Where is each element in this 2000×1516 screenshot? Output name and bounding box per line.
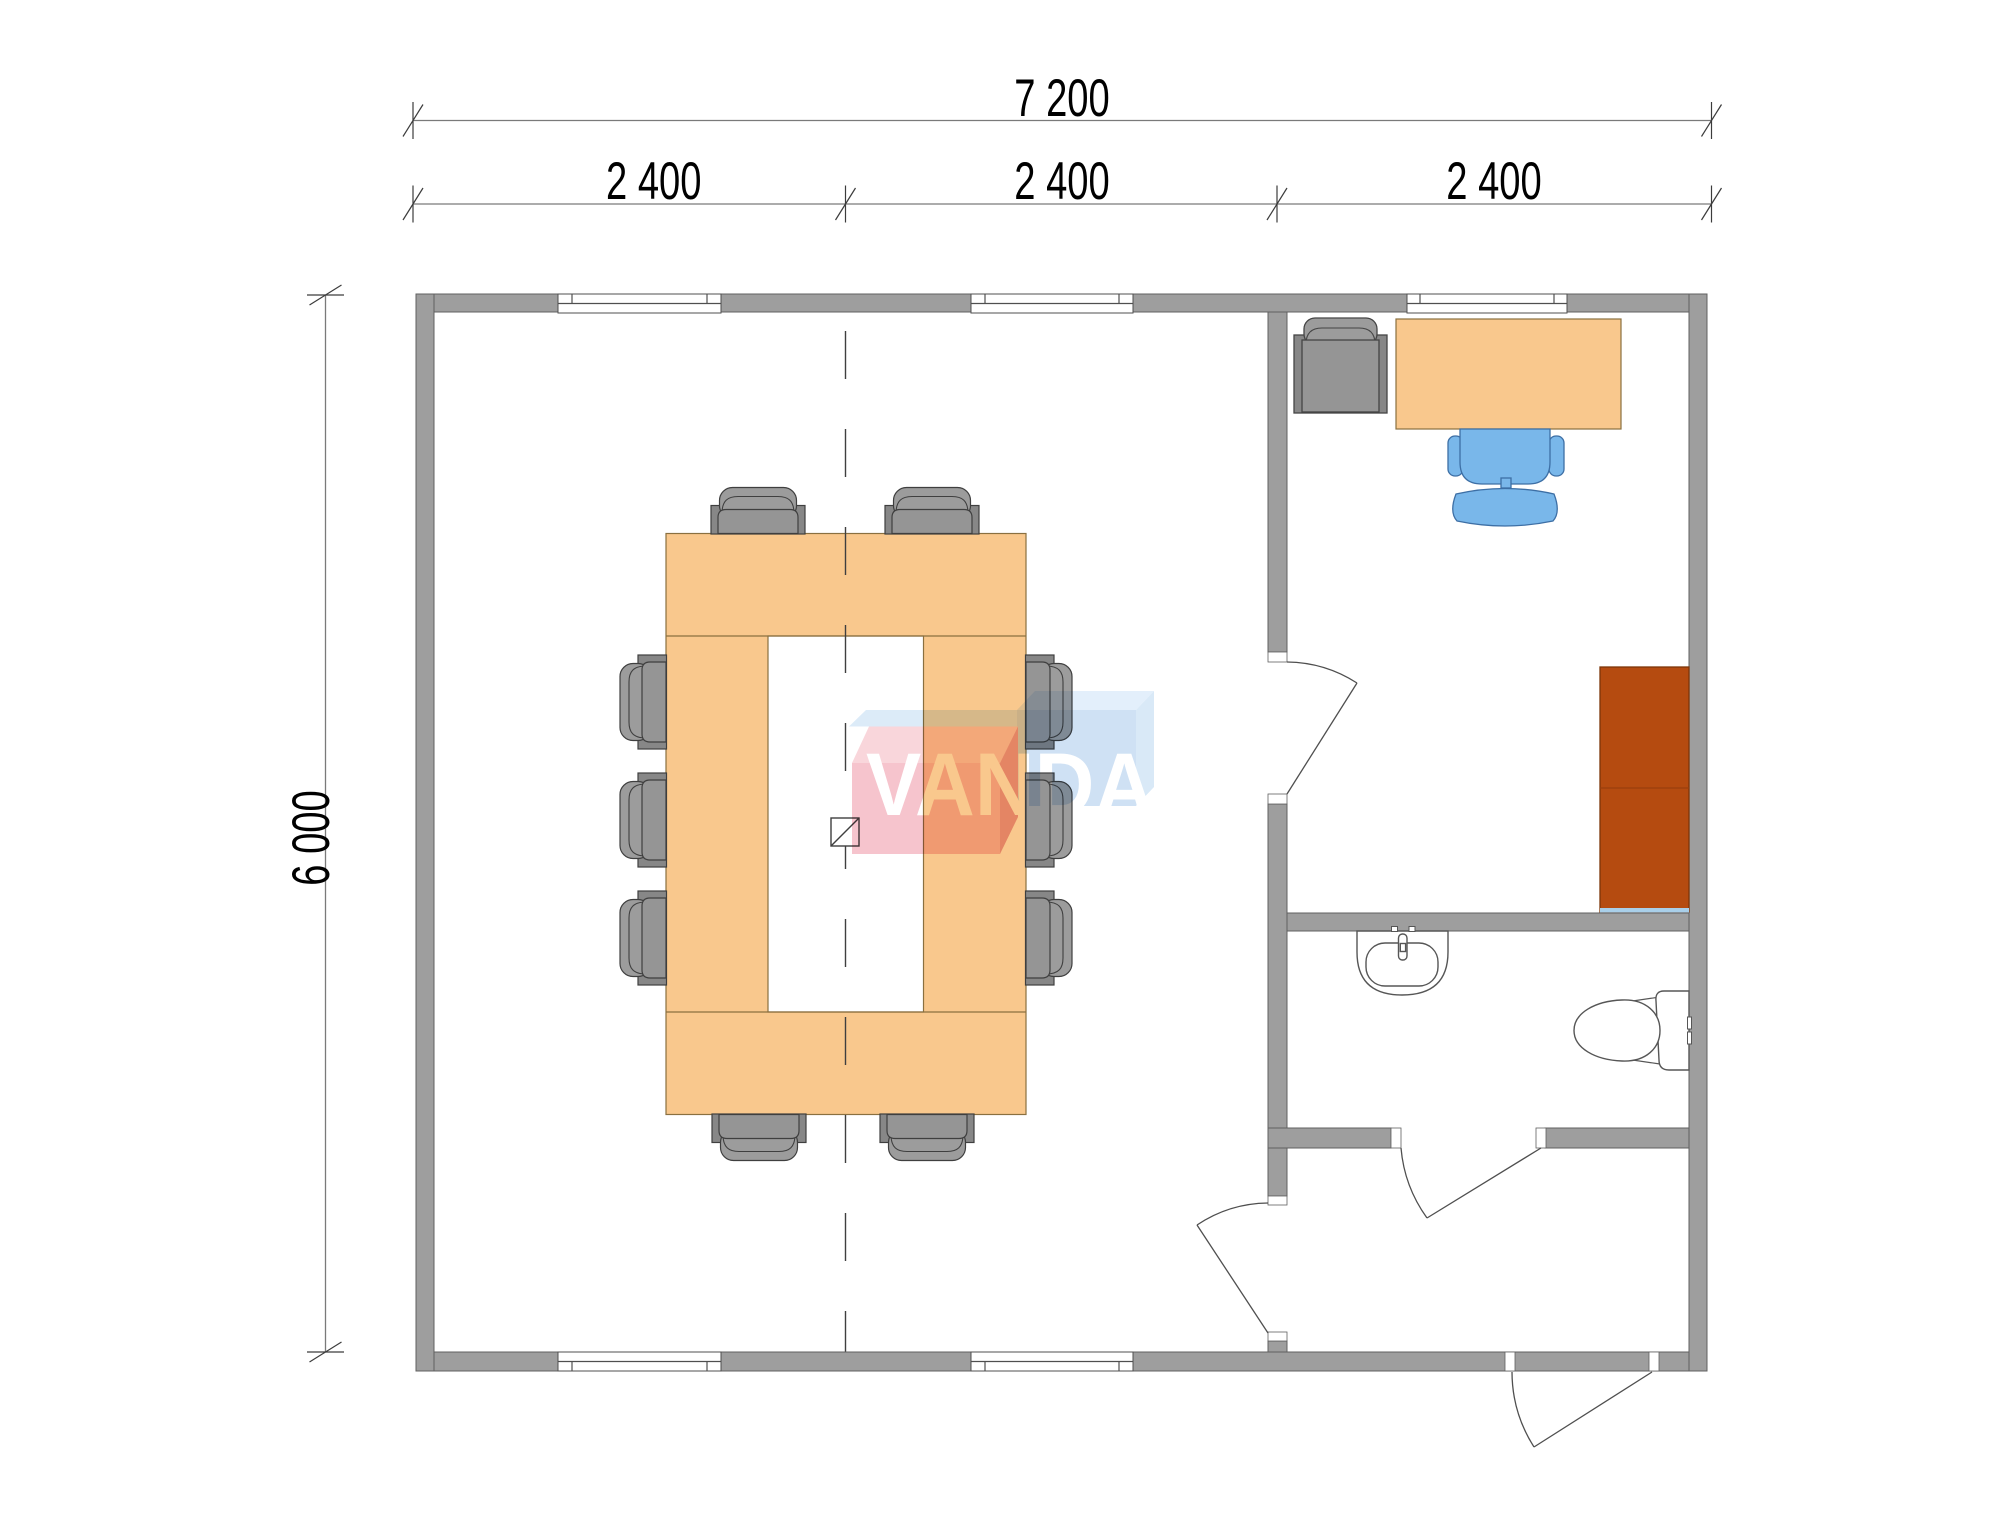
svg-text:2 400: 2 400 xyxy=(1446,151,1541,211)
svg-text:6 000: 6 000 xyxy=(281,790,341,885)
svg-text:2 400: 2 400 xyxy=(1014,151,1109,211)
svg-text:2 400: 2 400 xyxy=(606,151,701,211)
svg-text:7 200: 7 200 xyxy=(1014,68,1109,128)
svg-text:VANDA: VANDA xyxy=(866,735,1154,834)
